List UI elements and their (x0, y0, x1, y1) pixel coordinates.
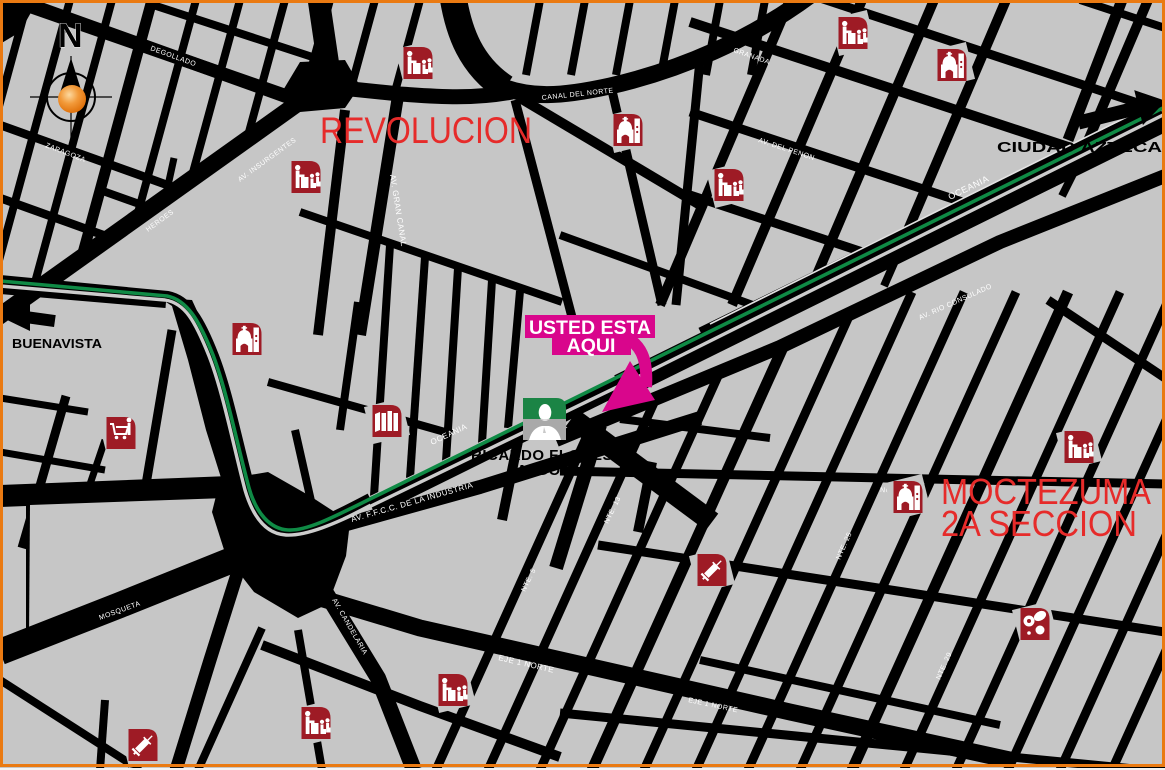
svg-text:N: N (58, 17, 83, 55)
svg-text:AQUI: AQUI (567, 335, 616, 357)
svg-text:MAGON: MAGON (512, 462, 572, 479)
svg-text:2A SECCION: 2A SECCION (941, 503, 1137, 544)
svg-text:CIUDAD AZTECA: CIUDAD AZTECA (997, 140, 1163, 156)
svg-text:REVOLUCION: REVOLUCION (320, 110, 532, 151)
svg-text:BUENAVISTA: BUENAVISTA (12, 336, 103, 351)
